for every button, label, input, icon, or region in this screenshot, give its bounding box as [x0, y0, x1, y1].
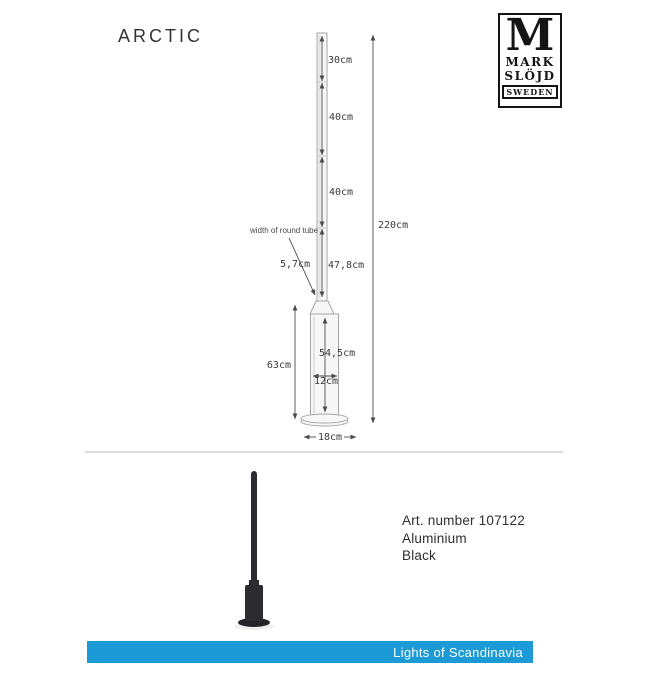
- dimension-labels: 30cm 40cm 40cm 47,8cm 220cm 63cm 54,5cm …: [249, 55, 408, 443]
- base-tube-width-label: 12cm: [314, 376, 338, 387]
- art-number: Art. number 107122: [402, 512, 525, 530]
- total-height-label: 220cm: [378, 220, 408, 231]
- segment-label-47-8cm: 47,8cm: [328, 260, 364, 271]
- footer-brand-text: Lights of Scandinavia: [393, 645, 533, 660]
- segment-label-30cm: 30cm: [328, 55, 352, 66]
- tube-width-note: width of round tube: [249, 226, 319, 235]
- footer-bar: Lights of Scandinavia: [87, 641, 533, 663]
- product-info: Art. number 107122 Aluminium Black: [402, 512, 525, 565]
- pole-photo-base: [245, 585, 263, 621]
- base-tube-length-label: 54,5cm: [319, 348, 355, 359]
- segment-label-40cm-upper: 40cm: [329, 112, 353, 123]
- base-section-height-label: 63cm: [267, 360, 291, 371]
- material: Aluminium: [402, 530, 525, 548]
- tube-width-label: 5,7cm: [280, 259, 310, 270]
- finish: Black: [402, 547, 525, 565]
- segment-label-40cm-lower: 40cm: [329, 187, 353, 198]
- foot-plate-width-label: 18cm: [318, 432, 342, 443]
- pole-photo-rod: [251, 471, 257, 582]
- technical-drawing: 30cm 40cm 40cm 47,8cm 220cm 63cm 54,5cm …: [0, 0, 650, 460]
- photo-divider: [85, 451, 563, 453]
